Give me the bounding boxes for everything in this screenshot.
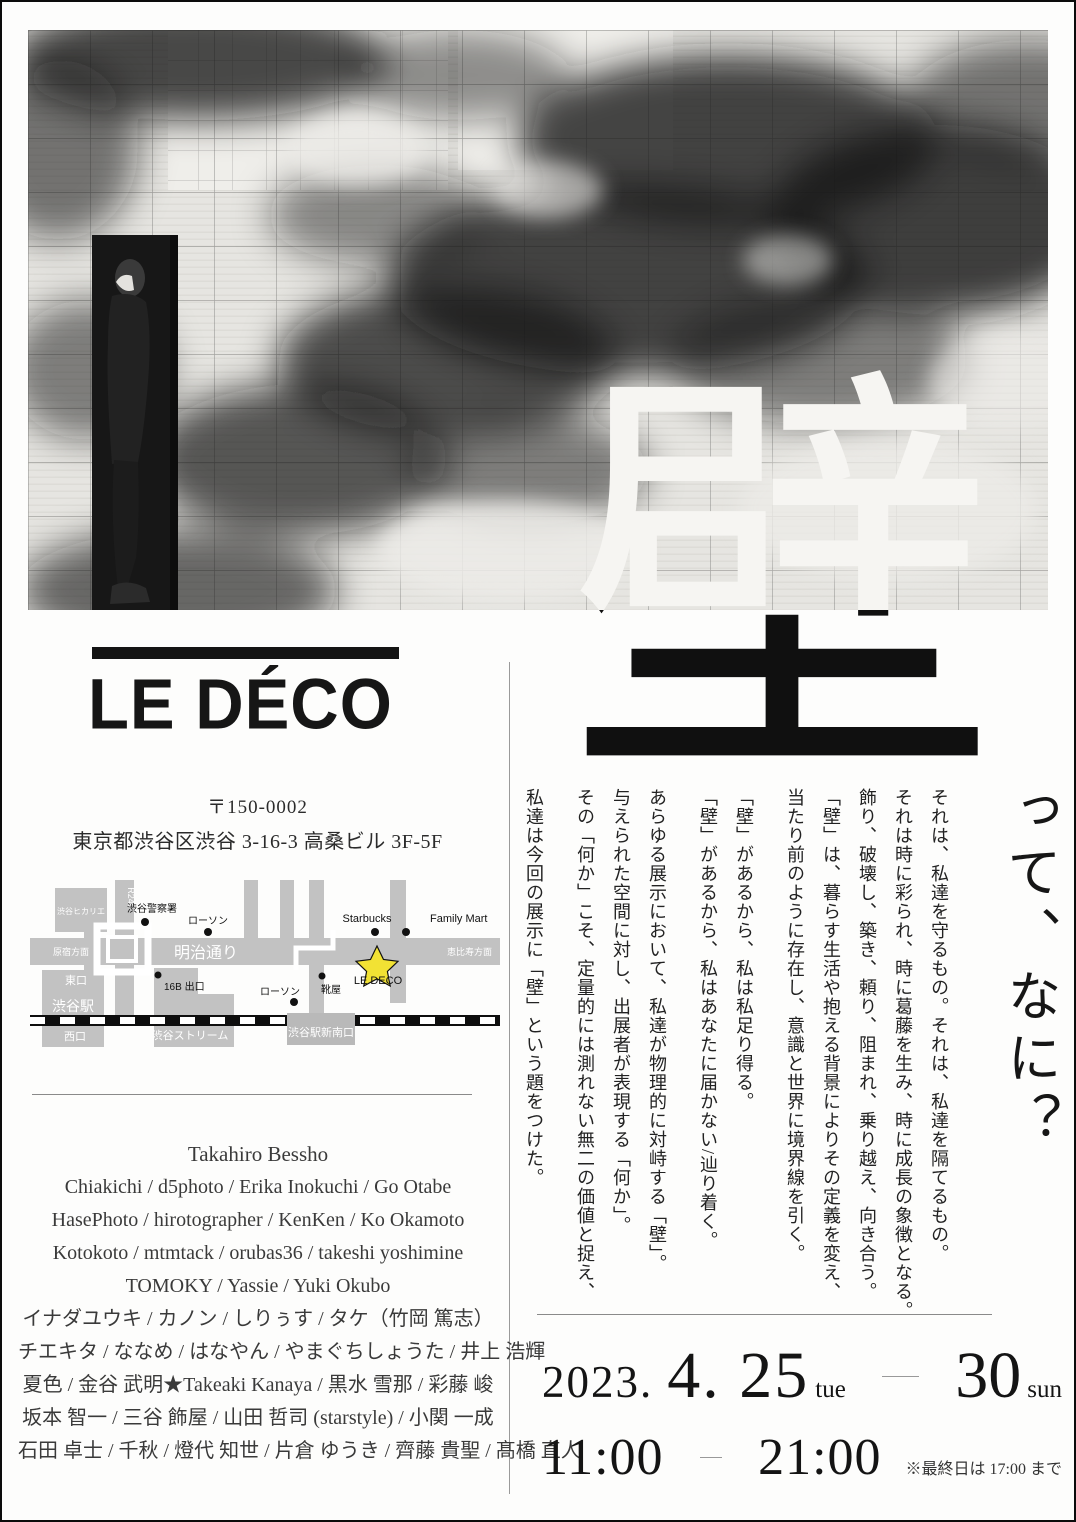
artist-line: TOMOKY / Yassie / Yuki Okubo <box>18 1270 498 1303</box>
map-railway <box>30 1015 500 1026</box>
artist-list: Takahiro Bessho Chiakichi / d5photo / Er… <box>18 1138 498 1468</box>
map-label-harajuku: 原宿方面 <box>53 946 89 957</box>
map-label-nishi: 西口 <box>64 1031 86 1043</box>
map-label-stream: 渋谷ストリーム <box>152 1029 229 1042</box>
street-address: 東京都渋谷区渋谷 3-16-3 高桑ビル 3F-5F <box>30 825 485 854</box>
map-label-family-mart: Family Mart <box>430 913 487 925</box>
gallery-logo: LE DÉCO <box>88 664 408 746</box>
wall-shadow-photo <box>28 30 1048 610</box>
artist-line: Kotokoto / mtmtack / orubas36 / takeshi … <box>18 1237 498 1270</box>
artist-line: 夏色 / 金谷 武明★Takeaki Kanaya / 黒水 雪那 / 彩藤 峻 <box>18 1369 498 1402</box>
time-row: 11:00 21:00 ※最終日は 17:00 まで <box>542 1428 1062 1487</box>
artist-line: Takahiro Bessho <box>18 1138 498 1171</box>
map-label-hikarie: 渋谷ヒカリエ <box>57 906 105 916</box>
artist-line: イナダユウキ / カノン / しりぅす / タケ（竹岡 篤志） <box>18 1303 498 1336</box>
map-label-ebisu: 恵比寿方面 <box>447 946 492 957</box>
start-weekday: tue <box>815 1376 846 1404</box>
map-label-police: 渋谷警察署 <box>127 902 177 915</box>
close-time: 21:00 <box>758 1428 881 1487</box>
time-range-dash <box>700 1457 723 1458</box>
vertical-divider <box>509 662 510 1494</box>
map-label-starbucks: Starbucks <box>343 913 392 925</box>
date-time-block: 2023. 4. 25 tue 30 sun 11:00 21:00 ※最終日は… <box>542 1338 1062 1487</box>
logo-top-bar <box>92 647 399 659</box>
map-label-le-deco: LE DECO <box>354 975 403 987</box>
end-date: 30 <box>955 1338 1021 1414</box>
start-date: 4. 25 <box>667 1338 809 1414</box>
open-time: 11:00 <box>542 1428 664 1487</box>
wall-shadow-photo-svg <box>28 30 1048 610</box>
exhibition-poster: 壁 壁 LE DÉCO 〒150-0002 東京都渋谷区渋谷 3-16-3 高桑… <box>0 0 1076 1522</box>
artist-line: 石田 卓士 / 千秋 / 燈代 知世 / 片倉 ゆうき / 齊藤 貴聖 / 髙橋… <box>18 1435 498 1468</box>
map-label-shin-minami: 渋谷駅新南口 <box>288 1025 354 1039</box>
essay-paragraph-2: 「壁」があるから、私は私足り得る。 「壁」があるから、私はあなたに届かない/辿り… <box>690 788 762 1328</box>
artist-line: 坂本 智一 / 三谷 飾屋 / 山田 哲司 (starstyle) / 小関 一… <box>18 1402 498 1435</box>
essay-paragraph-4: 私達は今回の展示に「壁」という題をつけた。 <box>516 788 552 1328</box>
essay-text: それは、私達を守るもの。それは、私達を隔てるもの。 それは時に彩られ、時に葛藤を… <box>517 788 957 1328</box>
last-day-note: ※最終日は 17:00 まで <box>906 1455 1062 1479</box>
exhibition-year: 2023. <box>542 1356 653 1408</box>
map-label-higashi: 東口 <box>65 974 87 987</box>
essay-paragraph-3: あらゆる展示において、私達が物理的に対峙する「壁」。 与えられた空間に対し、出展… <box>567 788 675 1328</box>
map-label-lawson1: ローソン <box>188 916 228 927</box>
map-label-meiji-dori: 明治通り <box>174 944 238 962</box>
gallery-address: 〒150-0002 東京都渋谷区渋谷 3-16-3 高桑ビル 3F-5F <box>30 792 485 854</box>
artist-line: チエキタ / ななめ / はなやん / やまぐちしょうた / 井上 浩輝 <box>18 1336 498 1369</box>
map-label-lawson2: ローソン <box>260 987 300 998</box>
artist-line: Chiakichi / d5photo / Erika Inokuchi / G… <box>18 1171 498 1204</box>
essay-paragraph-1: それは、私達を守るもの。それは、私達を隔てるもの。 それは時に彩られ、時に葛藤を… <box>777 788 957 1328</box>
postal-code: 〒150-0002 <box>30 792 485 819</box>
artist-line: HasePhoto / hirotographer / KenKen / Ko … <box>18 1204 498 1237</box>
kabe-heading-suffix: って、なに？ <box>990 782 1069 1302</box>
access-map: 渋谷ヒカリエ R246 渋谷警察署 ローソン 明治通り 原宿方面 恵比寿方面 東… <box>30 880 500 1062</box>
map-label-16b: 16B 出口 <box>164 980 205 993</box>
date-range-dash <box>882 1376 919 1377</box>
date-row: 2023. 4. 25 tue 30 sun <box>542 1338 1062 1414</box>
map-label-shibuya-station: 渋谷駅 <box>52 998 94 1014</box>
end-weekday: sun <box>1027 1376 1062 1404</box>
artists-divider <box>32 1094 472 1095</box>
map-label-kutsuya: 靴屋 <box>321 983 341 996</box>
